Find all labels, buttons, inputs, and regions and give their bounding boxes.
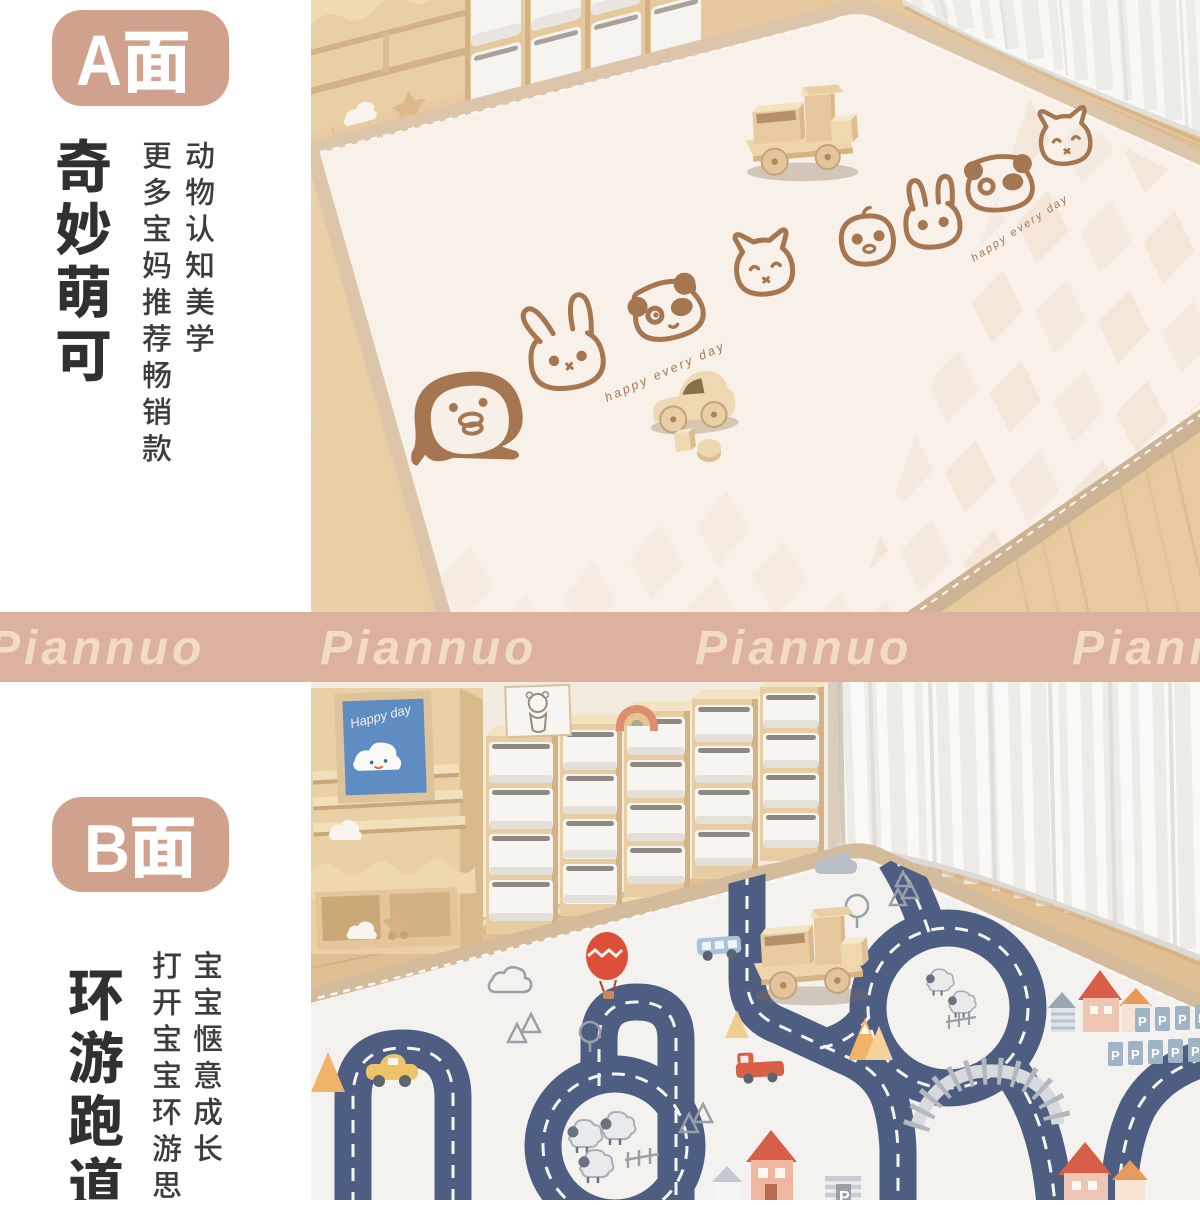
- svg-text:Piannuo: Piannuo: [1072, 622, 1200, 675]
- svg-text:B: B: [84, 811, 130, 887]
- svg-text:A: A: [76, 22, 122, 101]
- svg-text:P: P: [1111, 1048, 1120, 1063]
- svg-text:P: P: [1131, 1047, 1140, 1062]
- svg-text:P: P: [1178, 1012, 1187, 1027]
- svg-text:P: P: [1171, 1045, 1180, 1060]
- svg-text:P: P: [1151, 1046, 1160, 1061]
- svg-text:Piannuo: Piannuo: [0, 622, 205, 675]
- svg-text:Piannuo: Piannuo: [695, 622, 912, 675]
- svg-text:P: P: [1191, 1044, 1200, 1059]
- svg-text:P: P: [1158, 1013, 1167, 1028]
- svg-text:P: P: [1138, 1014, 1147, 1029]
- svg-text:Piannuo: Piannuo: [320, 622, 537, 675]
- svg-text:P: P: [839, 1189, 850, 1200]
